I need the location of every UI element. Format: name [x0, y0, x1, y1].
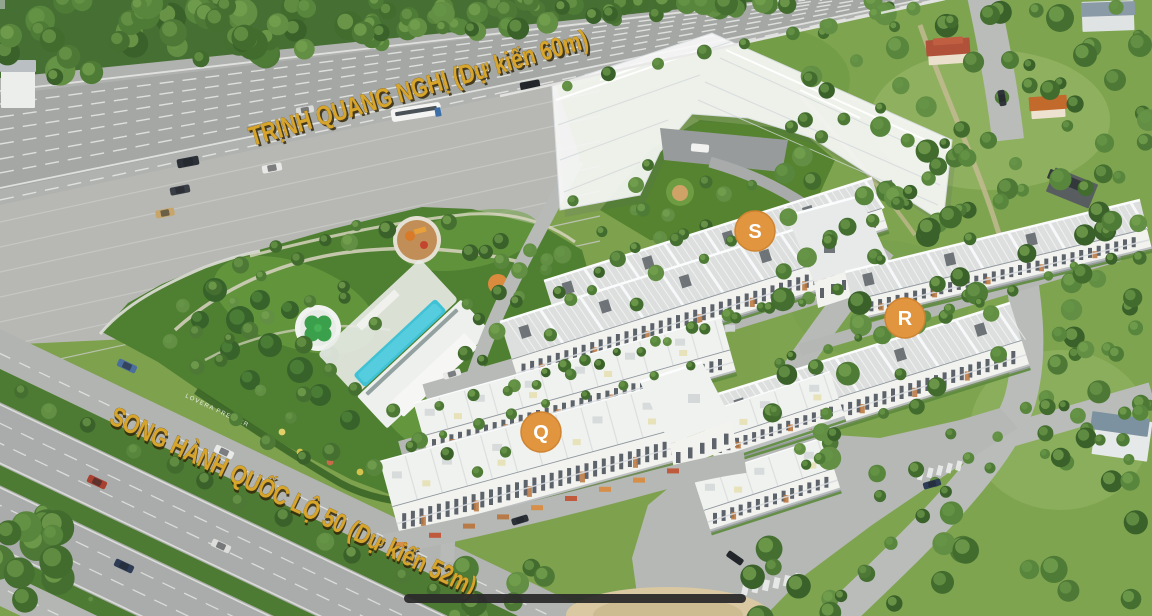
svg-text:S: S [748, 221, 761, 243]
svg-text:R: R [898, 308, 913, 330]
svg-text:Q: Q [533, 422, 549, 444]
